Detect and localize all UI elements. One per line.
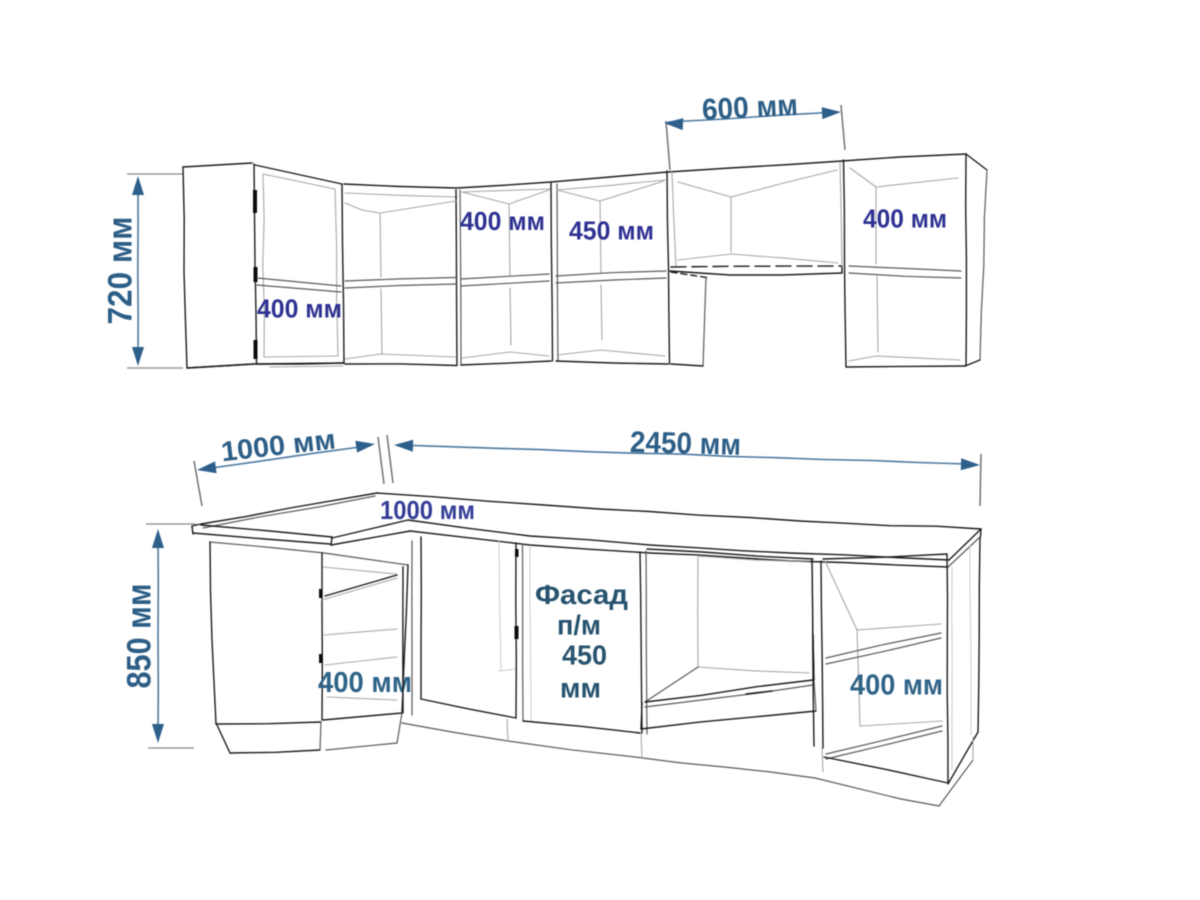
- svg-text:400 мм: 400 мм: [460, 206, 545, 236]
- svg-text:п/м: п/м: [557, 609, 601, 640]
- svg-text:Фасад: Фасад: [535, 579, 628, 610]
- svg-text:450 мм: 450 мм: [569, 215, 654, 245]
- svg-text:400 мм: 400 мм: [257, 293, 342, 323]
- svg-text:400 мм: 400 мм: [863, 203, 947, 233]
- svg-text:400 мм: 400 мм: [318, 667, 412, 699]
- svg-text:450: 450: [562, 639, 607, 670]
- svg-text:2450 мм: 2450 мм: [630, 426, 742, 462]
- svg-text:600 мм: 600 мм: [701, 89, 799, 127]
- svg-text:400 мм: 400 мм: [850, 670, 943, 702]
- svg-text:1000 мм: 1000 мм: [380, 495, 475, 525]
- svg-text:мм: мм: [560, 672, 601, 703]
- svg-text:850 мм: 850 мм: [120, 584, 158, 689]
- svg-text:720 мм: 720 мм: [101, 217, 139, 325]
